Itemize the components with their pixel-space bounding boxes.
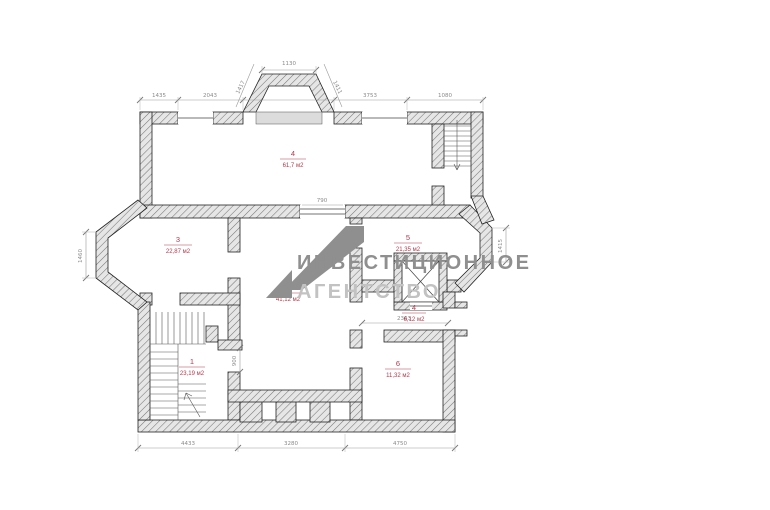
watermark-text-primary: ИНВЕСТИЦИОННОЕ	[297, 252, 531, 275]
room-label-room5: 5 21,35 м2	[394, 233, 422, 253]
room-area: 11,32 м2	[386, 373, 410, 379]
dimension-label: 3280	[284, 441, 298, 447]
bay-opening	[256, 112, 322, 124]
bay-window-left	[96, 200, 147, 310]
room-label-room6: 6 11,32 м2	[385, 359, 411, 379]
room-number: 3	[176, 235, 180, 244]
room-area: 23,19 м2	[180, 371, 205, 377]
dimension-label: 790	[317, 198, 328, 204]
room-number: 4	[291, 149, 295, 158]
room-area: 22,87 м2	[166, 249, 191, 255]
room-label-room1: 1 23,19 м2	[179, 357, 205, 377]
dimension-label: 3753	[363, 93, 377, 99]
staircase-top-right	[444, 120, 471, 170]
room-number: 1	[190, 357, 194, 366]
dimension-label: 1460	[78, 249, 84, 263]
room-number: 6	[396, 359, 400, 368]
room-area: 6,12 м2	[404, 317, 425, 323]
staircase-room1	[150, 312, 206, 420]
room-label-room3: 3 22,87 м2	[164, 235, 192, 255]
room-number: 5	[406, 233, 410, 242]
dimension-label: 1080	[438, 93, 452, 99]
dimension-label: 1411	[331, 80, 343, 95]
floor-plan-page: 1130141714111435204337531080443332804750…	[0, 0, 770, 510]
dimension-label: 2043	[203, 93, 217, 99]
dimension-label: 1130	[282, 61, 296, 67]
dimension-label: 1435	[152, 93, 166, 99]
dimension-label: 4433	[181, 441, 195, 447]
room-number: 4	[412, 303, 416, 312]
dimension-label: 900	[232, 355, 238, 366]
room-area: 61,7 м2	[283, 163, 304, 169]
bay-window-top	[243, 74, 334, 112]
dimension-label: 4750	[393, 441, 407, 447]
dimension-label: 1415	[498, 239, 504, 253]
room-label-hall: 4 61,7 м2	[280, 149, 306, 169]
watermark-text-secondary: АГЕНТСТВО	[297, 281, 441, 304]
dimension-label: 1417	[235, 80, 247, 96]
